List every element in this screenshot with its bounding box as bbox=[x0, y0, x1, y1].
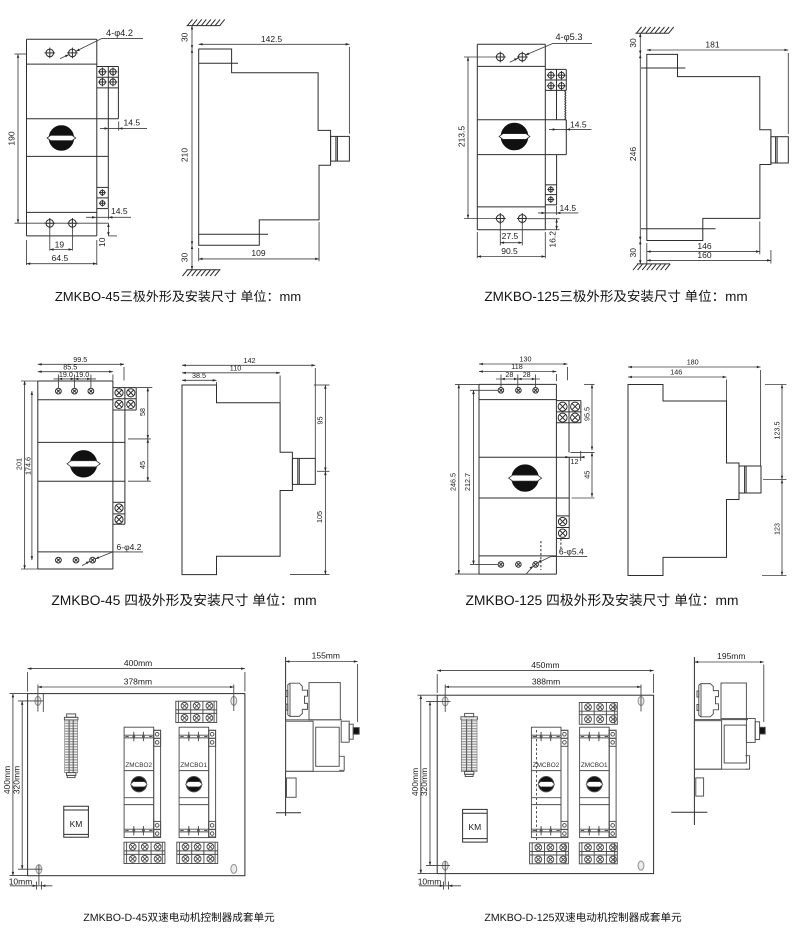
svg-text:ZMCBO1: ZMCBO1 bbox=[581, 762, 608, 769]
svg-text:213.5: 213.5 bbox=[456, 126, 466, 148]
svg-text:4-φ5.3: 4-φ5.3 bbox=[556, 32, 583, 42]
svg-text:388mm: 388mm bbox=[532, 676, 560, 686]
svg-text:195mm: 195mm bbox=[717, 651, 745, 661]
svg-text:12: 12 bbox=[571, 457, 579, 466]
svg-text:19.0: 19.0 bbox=[75, 370, 89, 379]
svg-text:174.6: 174.6 bbox=[24, 457, 33, 475]
svg-text:201: 201 bbox=[14, 458, 23, 470]
svg-text:30: 30 bbox=[628, 38, 638, 48]
svg-text:320mm: 320mm bbox=[11, 766, 21, 794]
svg-text:14.5: 14.5 bbox=[570, 119, 587, 129]
svg-text:4-φ4.2: 4-φ4.2 bbox=[106, 28, 133, 38]
svg-text:109: 109 bbox=[251, 248, 265, 258]
svg-text:19.0: 19.0 bbox=[59, 370, 73, 379]
svg-text:10mm: 10mm bbox=[418, 877, 442, 887]
svg-text:246.5: 246.5 bbox=[448, 473, 457, 491]
svg-text:28: 28 bbox=[505, 370, 513, 379]
svg-text:142.5: 142.5 bbox=[261, 34, 283, 44]
svg-text:19: 19 bbox=[55, 240, 65, 250]
svg-text:30: 30 bbox=[628, 248, 638, 258]
svg-text:190: 190 bbox=[6, 131, 16, 145]
svg-text:142: 142 bbox=[244, 356, 256, 365]
svg-text:160: 160 bbox=[697, 250, 711, 260]
svg-text:45: 45 bbox=[138, 461, 147, 469]
svg-text:KM: KM bbox=[70, 819, 83, 829]
svg-text:27.5: 27.5 bbox=[502, 231, 519, 241]
svg-text:105: 105 bbox=[315, 511, 324, 523]
svg-text:ZMCBO2: ZMCBO2 bbox=[125, 762, 152, 769]
svg-text:181: 181 bbox=[705, 40, 719, 50]
svg-text:210: 210 bbox=[180, 148, 190, 162]
svg-text:16.2: 16.2 bbox=[548, 231, 558, 248]
svg-text:6-φ5.4: 6-φ5.4 bbox=[559, 546, 584, 556]
svg-text:6-φ4.2: 6-φ4.2 bbox=[117, 542, 142, 552]
svg-text:10: 10 bbox=[97, 237, 107, 247]
svg-text:180: 180 bbox=[687, 358, 699, 367]
svg-text:28: 28 bbox=[523, 370, 531, 379]
svg-text:10mm: 10mm bbox=[9, 877, 33, 887]
svg-text:212.7: 212.7 bbox=[463, 473, 472, 491]
svg-text:KM: KM bbox=[469, 822, 482, 832]
svg-text:146: 146 bbox=[670, 368, 682, 377]
svg-text:14.5: 14.5 bbox=[560, 203, 577, 213]
svg-text:14.5: 14.5 bbox=[111, 206, 128, 216]
svg-text:123: 123 bbox=[773, 523, 782, 535]
svg-text:110: 110 bbox=[230, 363, 241, 372]
svg-text:95: 95 bbox=[315, 417, 324, 425]
svg-text:378mm: 378mm bbox=[124, 676, 152, 686]
svg-text:320mm: 320mm bbox=[419, 768, 429, 796]
svg-text:90.5: 90.5 bbox=[501, 246, 518, 256]
svg-text:38.5: 38.5 bbox=[192, 371, 206, 380]
svg-text:155mm: 155mm bbox=[312, 650, 340, 660]
svg-text:246: 246 bbox=[628, 147, 638, 161]
svg-text:64.5: 64.5 bbox=[52, 253, 69, 263]
svg-text:58: 58 bbox=[138, 408, 147, 416]
svg-text:14.5: 14.5 bbox=[124, 118, 141, 128]
svg-text:ZMCBO1: ZMCBO1 bbox=[180, 762, 207, 769]
svg-text:400mm: 400mm bbox=[124, 658, 152, 668]
svg-text:123.5: 123.5 bbox=[773, 422, 782, 440]
svg-text:30: 30 bbox=[180, 253, 190, 263]
svg-text:450mm: 450mm bbox=[531, 660, 559, 670]
svg-text:45: 45 bbox=[582, 471, 591, 479]
svg-text:95.5: 95.5 bbox=[582, 407, 591, 421]
svg-text:30: 30 bbox=[180, 32, 190, 42]
